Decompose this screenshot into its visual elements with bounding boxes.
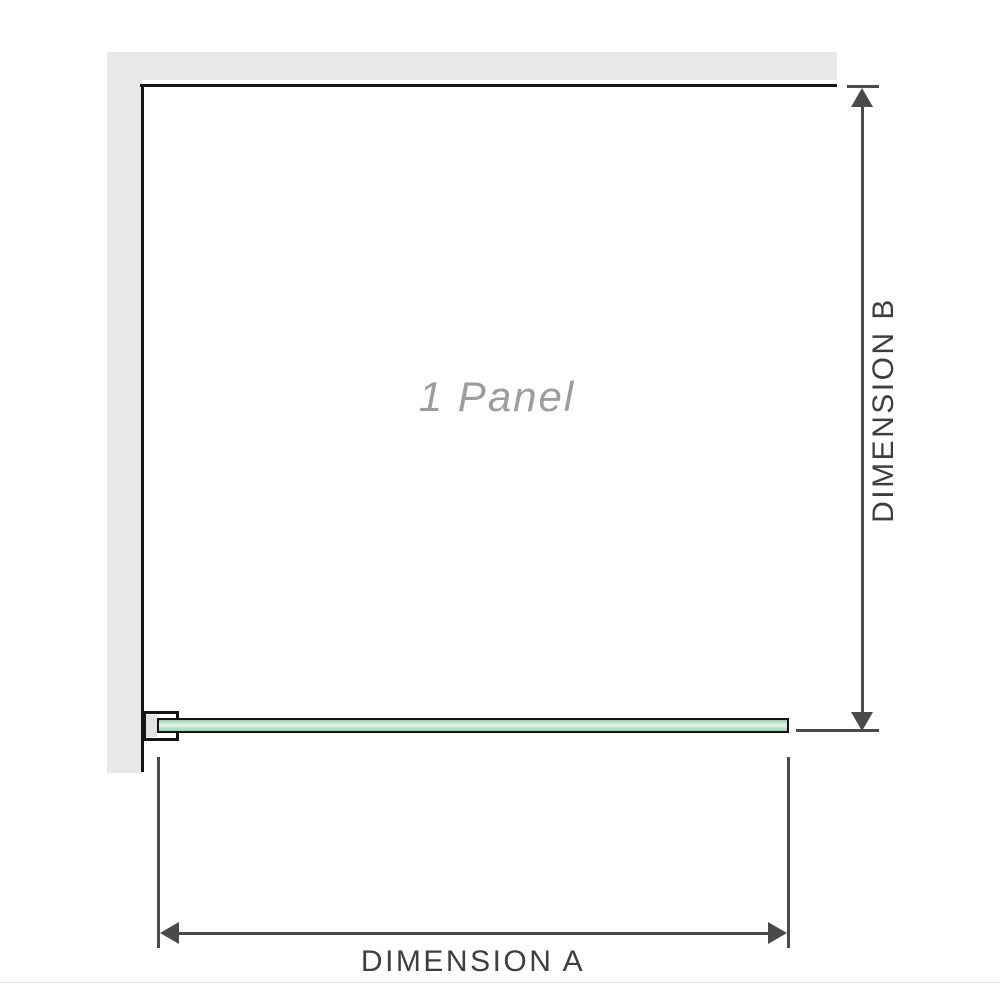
dimension-b-arrow-down-icon	[851, 712, 873, 731]
dimension-b-arrow-up-icon	[851, 88, 873, 107]
dimension-a-arrow-right-icon	[768, 922, 787, 944]
wall-top	[107, 52, 837, 80]
shower-panel-dimension-diagram: 1 Panel DIMENSION B DIMENSION A	[0, 0, 1000, 1000]
dimension-b-label: DIMENSION B	[867, 297, 901, 523]
dimension-a-extension-right	[787, 757, 790, 948]
opening-left-border	[141, 84, 144, 772]
baseline-divider	[0, 982, 1000, 983]
dimension-b-line	[861, 92, 864, 718]
wall-left	[107, 52, 142, 773]
dimension-a-line	[163, 932, 784, 935]
panel-count-label: 1 Panel	[419, 373, 575, 421]
bracket-insert	[146, 715, 157, 737]
dimension-a-extension-left	[157, 757, 160, 948]
opening-top-border	[140, 84, 837, 87]
glass-panel	[157, 718, 789, 733]
dimension-a-arrow-left-icon	[160, 922, 179, 944]
dimension-a-label: DIMENSION A	[361, 945, 585, 979]
